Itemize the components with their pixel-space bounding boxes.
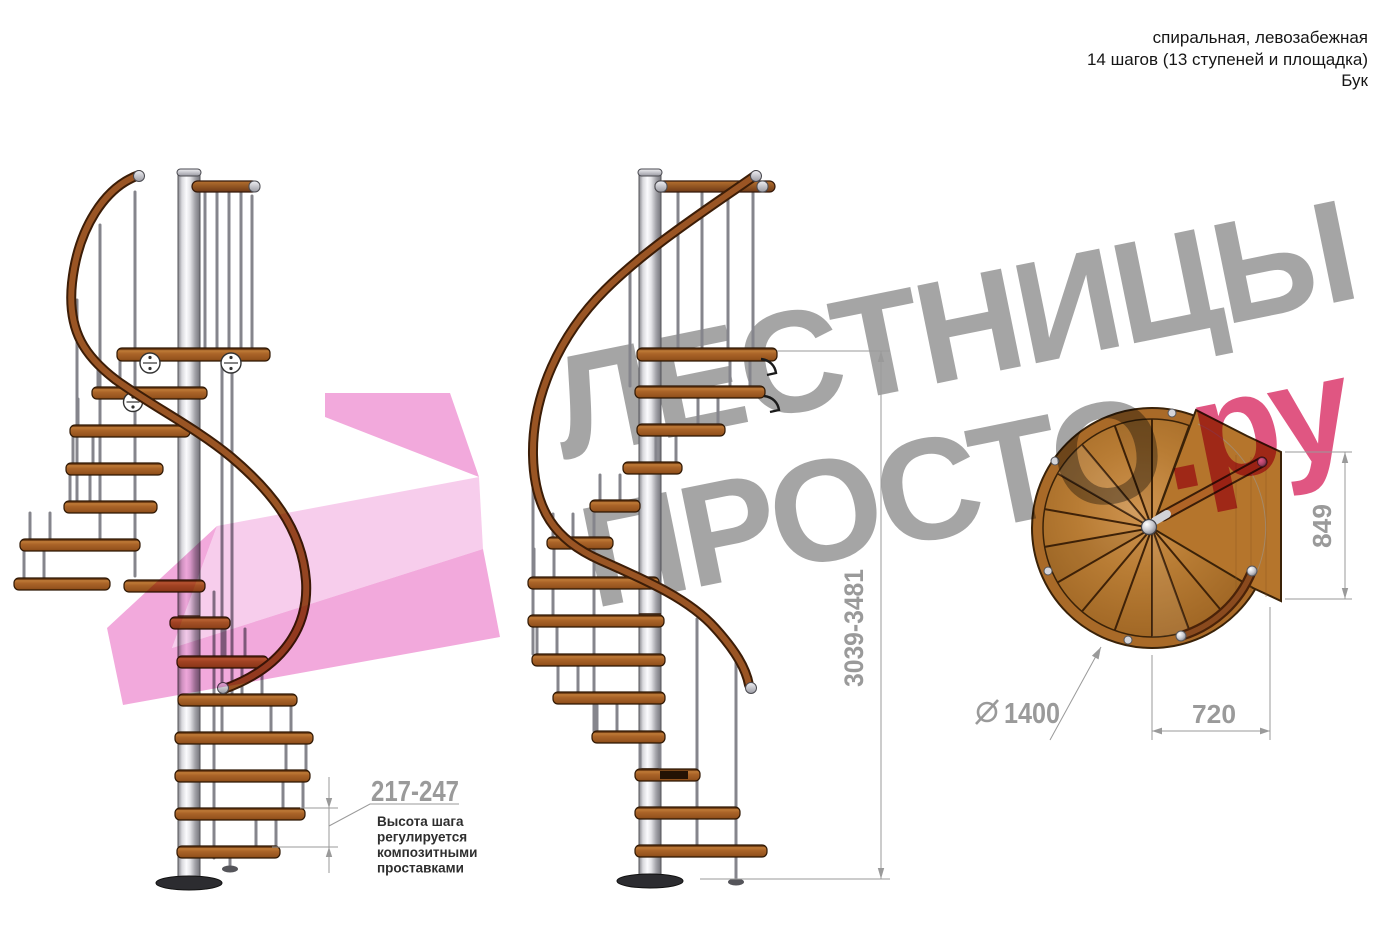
note-line: композитными	[377, 845, 477, 860]
total-height-value: 3039-3481	[839, 569, 869, 687]
spec-line-steps: 14 шагов (13 ступеней и площадка)	[1087, 49, 1368, 71]
note-line: Высота шага	[377, 814, 464, 829]
note-line: регулируется	[377, 830, 467, 845]
drawing-canvas: ЛЕСТНИЦЫ ПРОСТО.ру	[0, 0, 1400, 937]
spec-line-type: спиральная, левозабежная	[1087, 27, 1368, 49]
landing-side-value: 849	[1307, 504, 1337, 548]
step-height-value: 217-247	[371, 776, 459, 808]
spec-line-material: Бук	[1087, 70, 1368, 92]
diameter-icon	[976, 700, 998, 724]
note-line: проставками	[377, 861, 464, 876]
dim-landing-side: 849	[1285, 452, 1352, 599]
spec-header: спиральная, левозабежная 14 шагов (13 ст…	[1087, 27, 1368, 92]
dim-landing-width: 720	[1152, 607, 1270, 740]
landing-width-value: 720	[1192, 699, 1236, 729]
step-height-note: Высота шага регулируется композитными пр…	[377, 814, 477, 876]
diameter-value: 1400	[1004, 698, 1060, 730]
dim-total-height: 3039-3481	[700, 351, 890, 879]
annotations: 217-247 Высота шага регулируется компози…	[0, 0, 1400, 937]
dim-diameter: 1400	[976, 645, 1104, 740]
